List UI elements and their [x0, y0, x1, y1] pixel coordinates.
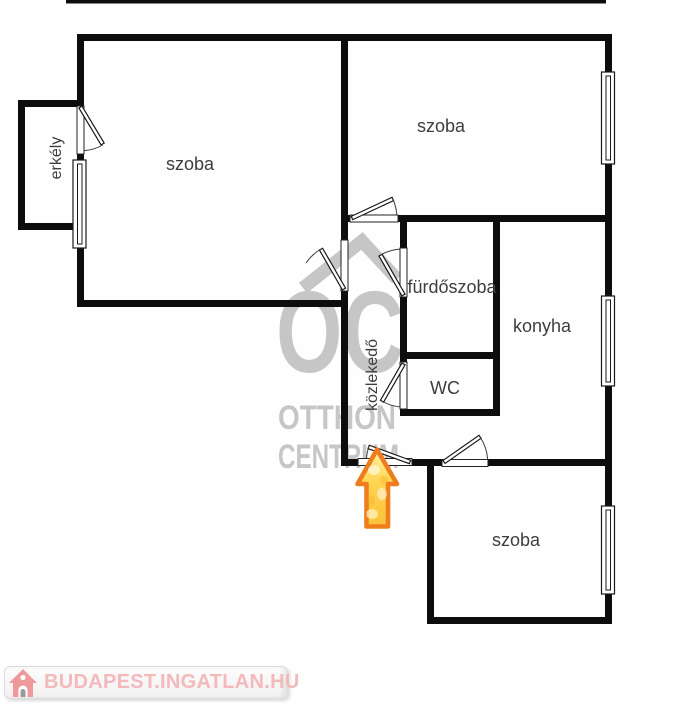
window-inner — [78, 164, 83, 244]
door-symbol-balcony — [77, 106, 104, 154]
wall — [427, 617, 612, 624]
floorplan-page: OC OTTHON CENTRUM — [0, 0, 676, 703]
otthon-centrum-watermark: OC OTTHON CENTRUM — [276, 241, 404, 476]
window-symbol — [73, 160, 86, 248]
house-icon — [8, 668, 38, 698]
door-symbol-room-bottom — [442, 435, 488, 466]
room-label-kitchen: konyha — [513, 316, 572, 336]
window-symbol — [602, 296, 615, 386]
wall — [400, 409, 500, 416]
footer-brand-text: BUDAPEST.INGATLAN.HU — [44, 671, 300, 694]
room-label-hallway: közlekedő — [364, 339, 381, 411]
window-inner — [606, 300, 611, 382]
room-label-wc: WC — [430, 378, 460, 398]
wall — [400, 352, 500, 359]
window-inner — [606, 76, 611, 160]
room-label-balcony: erkély — [48, 137, 65, 180]
wall — [18, 100, 25, 230]
wall — [66, 0, 606, 4]
wall — [18, 223, 77, 230]
room-label-top-right: szoba — [417, 116, 466, 136]
room-label-top-left: szoba — [166, 154, 215, 174]
wall — [77, 300, 348, 307]
wall — [18, 100, 84, 107]
window-symbol — [602, 506, 615, 594]
room-label-bathroom: fürdőszoba — [407, 277, 497, 297]
window-inner — [606, 510, 611, 590]
wall — [493, 215, 500, 416]
wall — [427, 459, 434, 624]
room-label-bottom: szoba — [492, 530, 541, 550]
window-symbol — [602, 72, 615, 164]
footer-brand-bar: BUDAPEST.INGATLAN.HU — [4, 666, 288, 699]
floorplan-canvas: OC OTTHON CENTRUM — [0, 0, 676, 703]
door-symbol-room-top-right — [350, 197, 398, 222]
